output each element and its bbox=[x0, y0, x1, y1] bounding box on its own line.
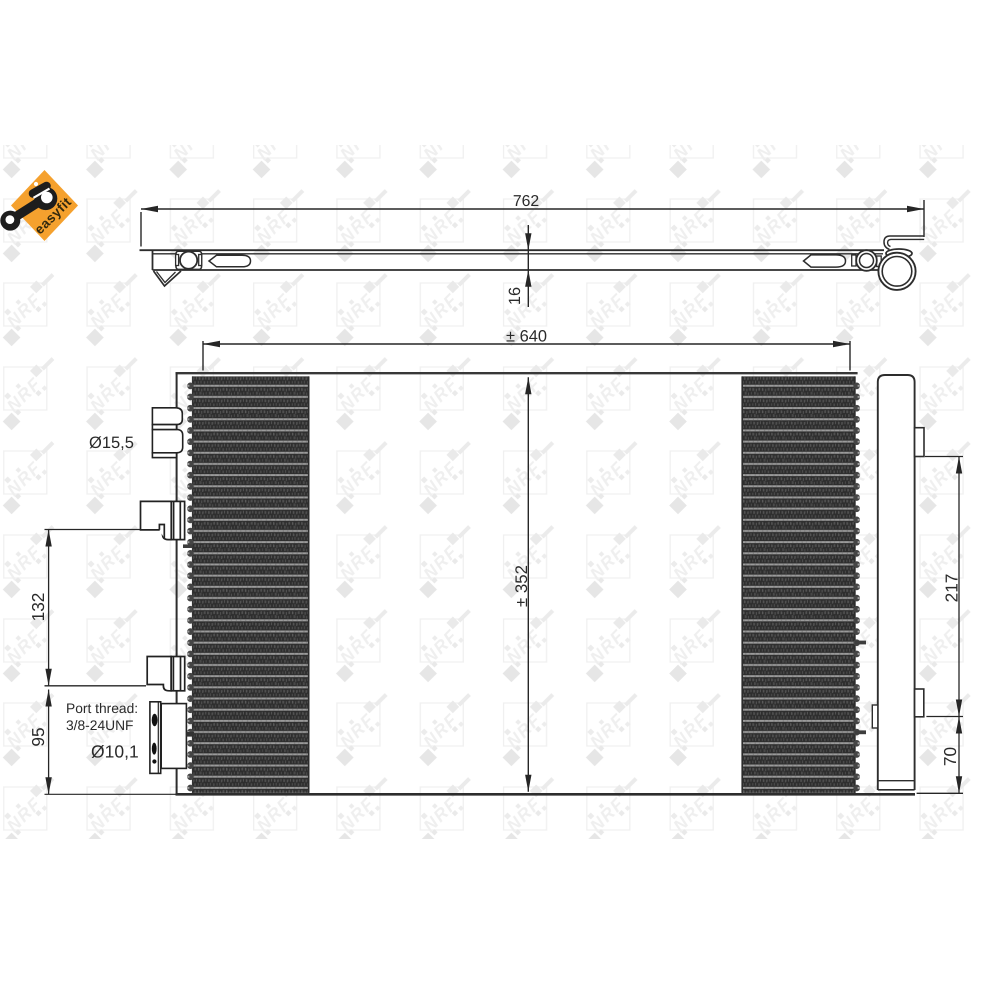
svg-text:95: 95 bbox=[28, 727, 48, 746]
svg-text:132: 132 bbox=[28, 593, 48, 622]
svg-text:± 640: ± 640 bbox=[506, 328, 547, 346]
svg-text:16: 16 bbox=[506, 287, 524, 305]
svg-text:3/8-24UNF: 3/8-24UNF bbox=[66, 718, 133, 733]
svg-text:762: 762 bbox=[513, 193, 539, 210]
svg-text:Ø10,1: Ø10,1 bbox=[91, 742, 139, 762]
svg-text:70: 70 bbox=[940, 747, 960, 766]
svg-text:± 352: ± 352 bbox=[512, 565, 531, 607]
svg-text:Ø15,5: Ø15,5 bbox=[89, 434, 134, 452]
svg-text:217: 217 bbox=[942, 574, 962, 603]
svg-text:Port thread:: Port thread: bbox=[66, 701, 138, 716]
